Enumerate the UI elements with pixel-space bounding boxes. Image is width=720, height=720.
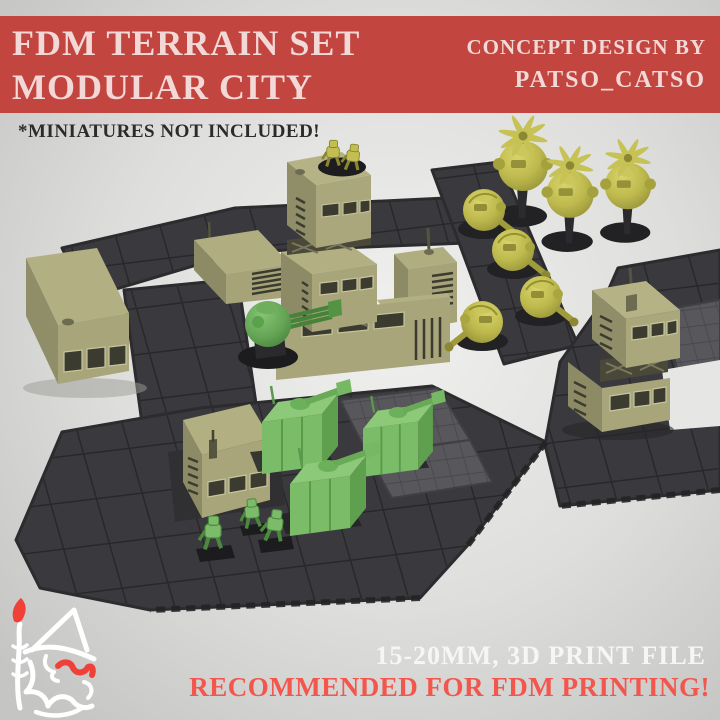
banner-title-block: FDM TERRAIN SET MODULAR CITY [12, 21, 360, 109]
poster-title-line2: MODULAR CITY [12, 65, 360, 109]
miniatures-disclaimer: *MINIATURES NOT INCLUDED! [18, 121, 320, 143]
credit-line1: CONCEPT DESIGN BY [467, 35, 707, 59]
print-spec-note: 15-20MM, 3D PRINT FILE [375, 641, 706, 671]
credit-line2: PATSO_CATSO [467, 66, 707, 94]
poster-title-line1: FDM TERRAIN SET [12, 21, 360, 65]
title-banner: FDM TERRAIN SET MODULAR CITY CONCEPT DES… [0, 16, 720, 113]
product-poster: FDM TERRAIN SET MODULAR CITY CONCEPT DES… [0, 0, 720, 720]
banner-credit-block: CONCEPT DESIGN BY PATSO_CATSO [467, 35, 707, 94]
plate-gap [662, 360, 720, 430]
fdm-recommendation-note: RECOMMENDED FOR FDM PRINTING! [189, 672, 710, 703]
